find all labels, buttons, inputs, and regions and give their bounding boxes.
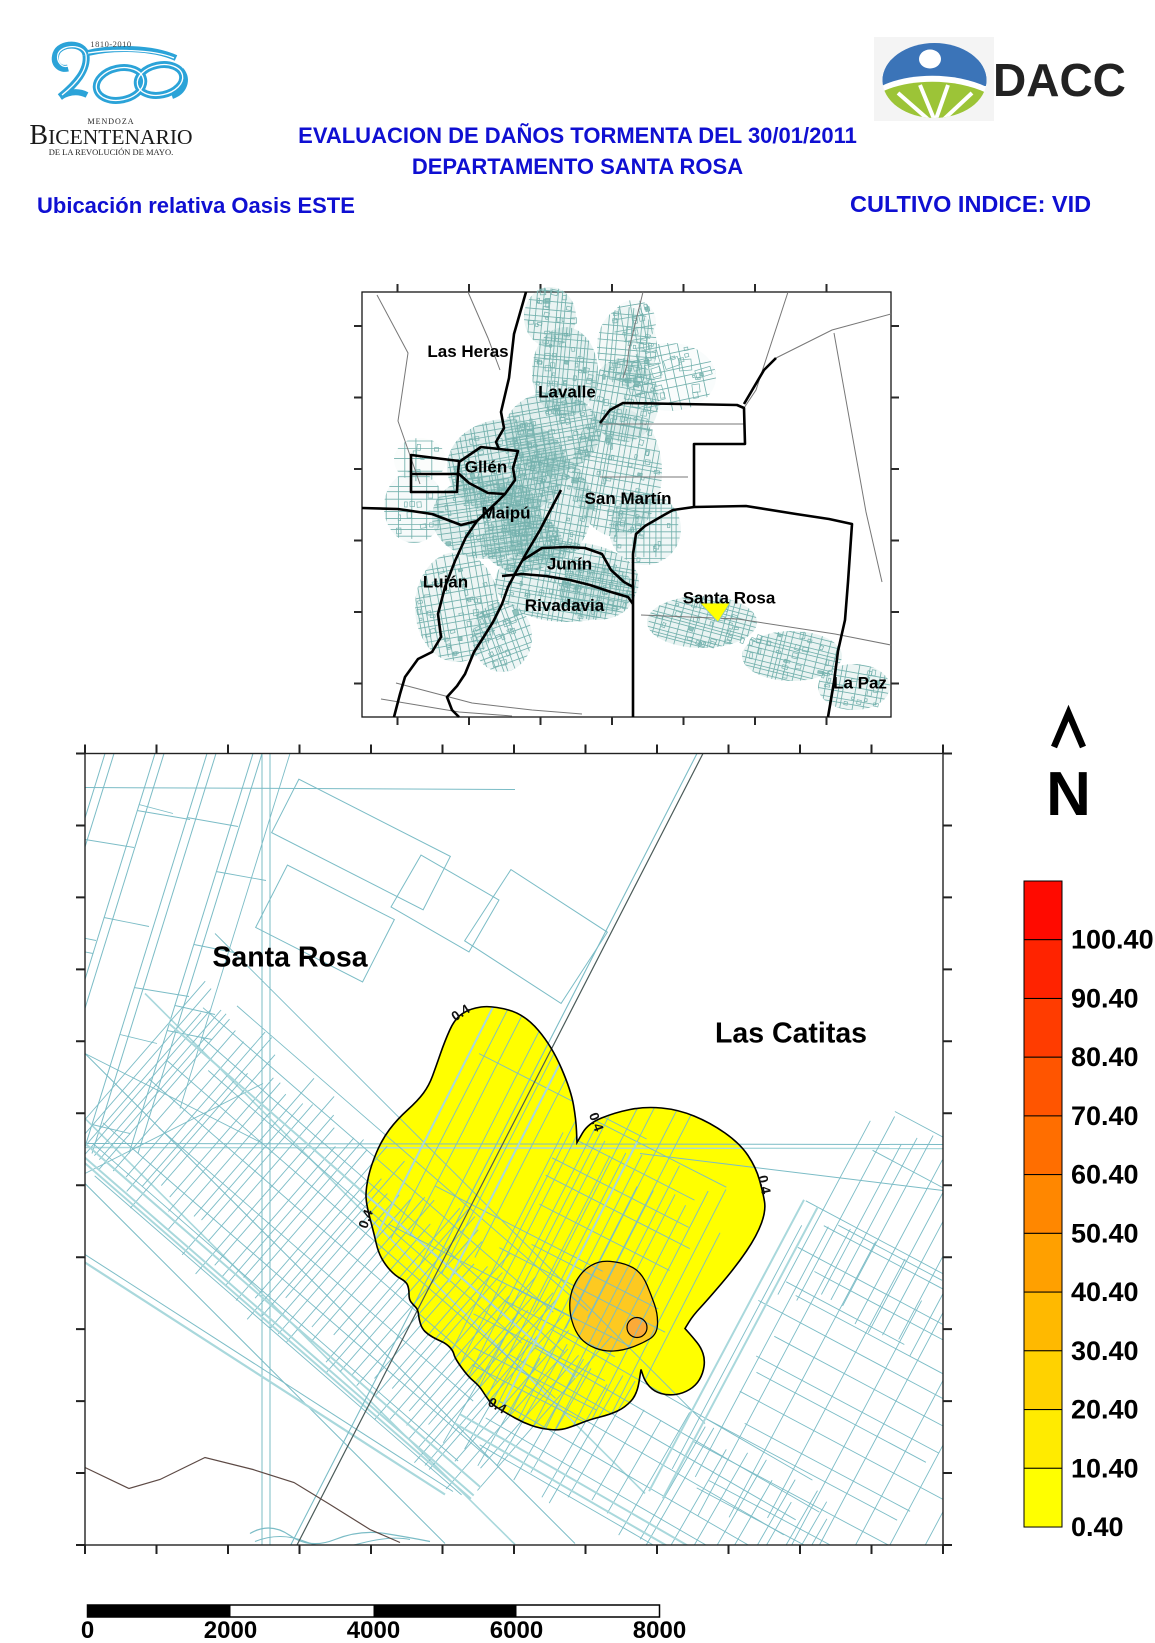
svg-text:70.40: 70.40: [1071, 1101, 1139, 1131]
svg-text:2000: 2000: [204, 1617, 257, 1643]
svg-text:40.40: 40.40: [1071, 1277, 1139, 1307]
svg-text:0: 0: [81, 1617, 94, 1643]
svg-text:Santa Rosa: Santa Rosa: [683, 589, 776, 608]
svg-text:100.40: 100.40: [1071, 925, 1154, 955]
svg-text:Junín: Junín: [547, 555, 592, 574]
svg-text:90.40: 90.40: [1071, 984, 1139, 1014]
svg-text:Santa Rosa: Santa Rosa: [212, 942, 368, 974]
svg-text:60.40: 60.40: [1071, 1160, 1139, 1190]
svg-text:8000: 8000: [633, 1617, 686, 1643]
svg-text:Rivadavia: Rivadavia: [525, 596, 605, 615]
svg-text:80.40: 80.40: [1071, 1042, 1139, 1072]
svg-text:Lavalle: Lavalle: [538, 383, 596, 402]
svg-text:Luján: Luján: [423, 573, 468, 592]
svg-text:20.40: 20.40: [1071, 1395, 1139, 1425]
svg-text:La Paz: La Paz: [833, 674, 887, 693]
svg-text:4000: 4000: [347, 1617, 400, 1643]
svg-text:50.40: 50.40: [1071, 1218, 1139, 1248]
svg-text:Maipú: Maipú: [481, 504, 530, 523]
svg-text:0.40: 0.40: [1071, 1512, 1124, 1542]
svg-text:DACC: DACC: [993, 54, 1126, 106]
svg-text:Gllén: Gllén: [465, 458, 508, 477]
svg-text:Las Heras: Las Heras: [427, 342, 508, 361]
svg-text:Las Catitas: Las Catitas: [715, 1018, 867, 1050]
svg-text:10.40: 10.40: [1071, 1453, 1139, 1483]
svg-text:N: N: [1046, 760, 1091, 829]
svg-text:San Martín: San Martín: [585, 489, 672, 508]
svg-text:30.40: 30.40: [1071, 1336, 1139, 1366]
svg-text:1810-2010: 1810-2010: [90, 39, 131, 49]
svg-text:6000: 6000: [490, 1617, 543, 1643]
